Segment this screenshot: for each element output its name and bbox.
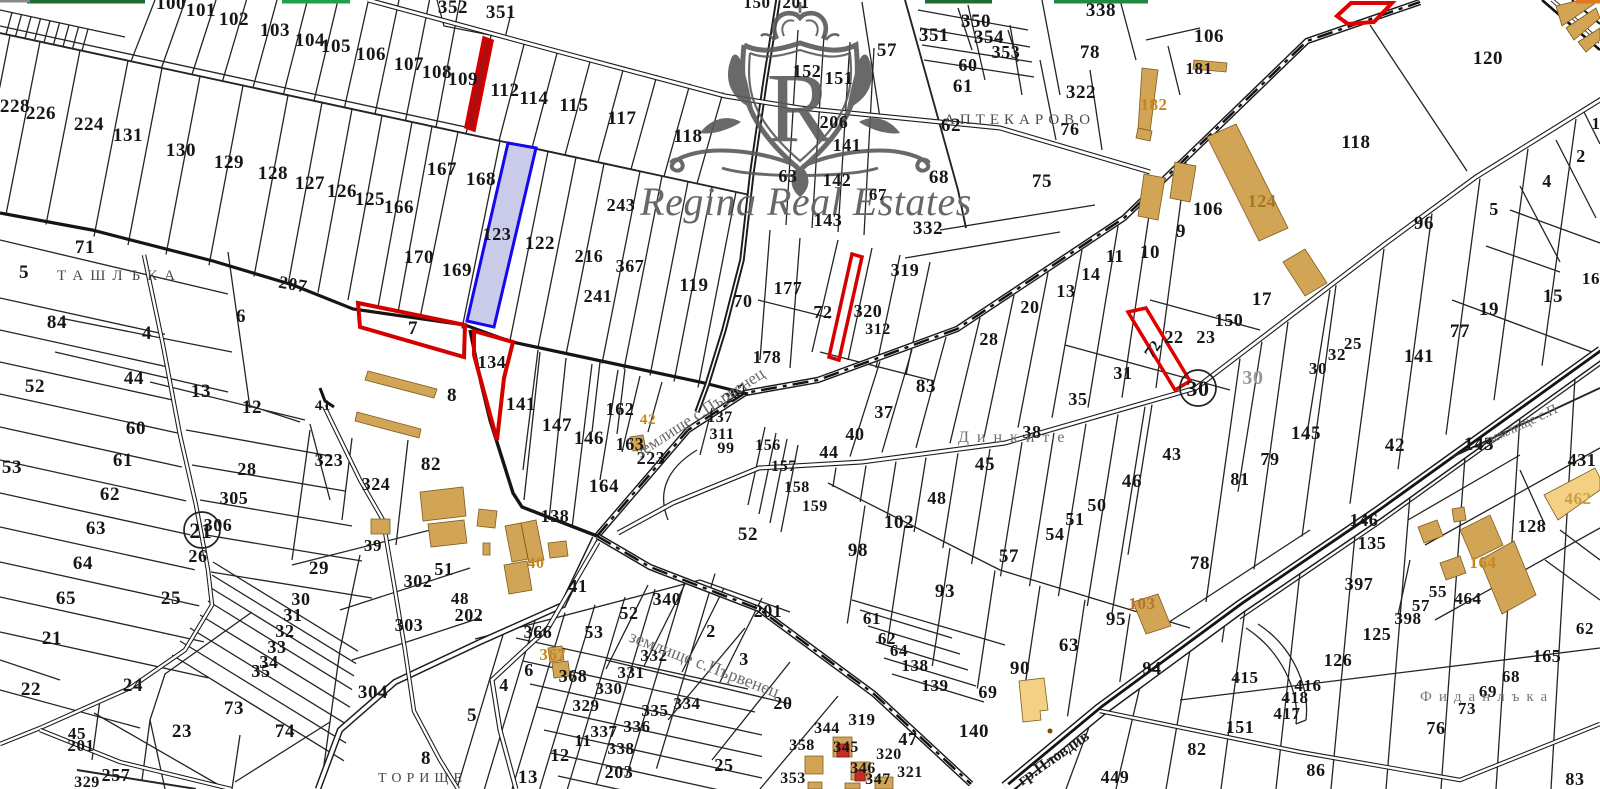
- svg-text:95: 95: [1106, 609, 1126, 630]
- svg-text:417: 417: [1273, 704, 1300, 723]
- svg-text:201: 201: [754, 601, 783, 621]
- svg-text:157: 157: [771, 458, 797, 475]
- svg-text:206: 206: [820, 112, 849, 132]
- svg-text:123: 123: [483, 224, 512, 244]
- svg-text:319: 319: [891, 260, 920, 280]
- svg-text:138: 138: [541, 506, 570, 526]
- svg-text:143: 143: [814, 210, 843, 230]
- svg-text:164: 164: [1469, 553, 1496, 572]
- svg-text:165: 165: [1533, 646, 1562, 666]
- svg-text:2: 2: [706, 621, 716, 641]
- svg-text:53: 53: [584, 622, 603, 642]
- svg-text:340: 340: [653, 589, 682, 609]
- svg-text:338: 338: [1086, 0, 1116, 21]
- svg-text:322: 322: [1066, 82, 1096, 103]
- svg-text:65: 65: [56, 588, 76, 609]
- svg-text:50: 50: [1087, 495, 1106, 515]
- svg-text:112: 112: [490, 80, 519, 101]
- svg-text:141: 141: [1404, 346, 1434, 367]
- svg-text:345: 345: [833, 739, 859, 756]
- svg-text:366: 366: [524, 622, 553, 642]
- svg-text:69: 69: [978, 682, 997, 702]
- svg-text:358: 358: [789, 737, 815, 754]
- svg-text:84: 84: [47, 312, 67, 333]
- svg-text:48: 48: [927, 488, 946, 508]
- svg-text:224: 224: [74, 114, 104, 135]
- svg-text:140: 140: [959, 721, 989, 742]
- svg-text:62: 62: [1576, 619, 1594, 638]
- svg-text:177: 177: [774, 278, 803, 298]
- svg-text:334: 334: [673, 694, 700, 713]
- svg-text:63: 63: [86, 518, 106, 539]
- svg-text:78: 78: [1190, 553, 1210, 574]
- svg-text:94: 94: [1142, 658, 1161, 678]
- svg-text:43: 43: [1162, 444, 1181, 464]
- svg-text:320: 320: [876, 746, 902, 763]
- svg-text:4: 4: [499, 675, 509, 695]
- svg-text:53: 53: [2, 457, 22, 478]
- svg-text:52: 52: [25, 376, 45, 397]
- svg-text:4: 4: [1542, 171, 1552, 191]
- svg-text:29: 29: [309, 558, 329, 579]
- svg-text:12: 12: [242, 397, 262, 418]
- svg-text:131: 131: [113, 125, 143, 146]
- svg-text:332: 332: [913, 218, 943, 239]
- svg-text:216: 216: [575, 246, 604, 266]
- svg-text:329: 329: [74, 774, 100, 789]
- svg-text:60: 60: [958, 55, 977, 75]
- svg-text:367: 367: [539, 645, 566, 664]
- svg-text:1: 1: [1591, 114, 1600, 133]
- svg-text:24: 24: [123, 675, 143, 696]
- svg-text:139: 139: [921, 676, 948, 695]
- svg-text:75: 75: [1032, 171, 1052, 192]
- svg-text:182: 182: [1140, 95, 1167, 114]
- svg-text:202: 202: [455, 605, 484, 625]
- svg-text:64: 64: [73, 553, 93, 574]
- svg-text:61: 61: [113, 450, 133, 471]
- svg-text:118: 118: [1341, 132, 1370, 153]
- svg-text:126: 126: [327, 181, 357, 202]
- svg-text:134: 134: [478, 352, 507, 372]
- svg-text:169: 169: [442, 260, 472, 281]
- svg-text:102: 102: [219, 9, 249, 30]
- svg-text:96: 96: [1414, 213, 1434, 234]
- svg-text:398: 398: [1394, 609, 1421, 628]
- svg-text:146: 146: [1350, 510, 1379, 530]
- svg-text:82: 82: [421, 454, 441, 475]
- svg-text:156: 156: [755, 437, 781, 454]
- svg-text:181: 181: [1185, 59, 1212, 78]
- svg-text:76: 76: [1426, 718, 1445, 738]
- svg-text:166: 166: [384, 197, 414, 218]
- svg-text:127: 127: [295, 173, 325, 194]
- svg-text:25: 25: [714, 755, 733, 775]
- svg-text:51: 51: [1065, 509, 1084, 529]
- svg-text:347: 347: [865, 771, 891, 788]
- svg-text:11: 11: [574, 731, 591, 750]
- svg-text:323: 323: [315, 450, 344, 470]
- svg-text:45: 45: [975, 454, 995, 475]
- svg-text:14: 14: [1081, 264, 1100, 284]
- svg-text:8: 8: [421, 748, 431, 769]
- svg-text:61: 61: [863, 609, 881, 628]
- svg-text:30: 30: [1186, 376, 1209, 401]
- svg-text:81: 81: [1230, 469, 1249, 489]
- svg-text:117: 117: [607, 108, 636, 129]
- svg-text:158: 158: [784, 479, 810, 496]
- svg-text:44: 44: [819, 442, 838, 462]
- svg-text:462: 462: [1564, 489, 1591, 508]
- svg-text:449: 449: [1101, 767, 1130, 787]
- svg-text:415: 415: [1231, 668, 1258, 687]
- svg-text:46: 46: [1122, 471, 1142, 492]
- svg-text:23: 23: [172, 721, 192, 742]
- svg-text:5: 5: [19, 262, 29, 283]
- svg-text:82: 82: [1187, 739, 1206, 759]
- svg-text:107: 107: [394, 54, 424, 75]
- svg-text:168: 168: [466, 169, 496, 190]
- svg-text:125: 125: [1363, 624, 1392, 644]
- svg-text:241: 241: [584, 286, 613, 306]
- svg-text:353: 353: [780, 770, 806, 787]
- svg-text:431: 431: [1568, 450, 1597, 470]
- svg-text:41: 41: [315, 398, 331, 414]
- svg-text:20: 20: [1020, 297, 1039, 317]
- svg-text:28: 28: [979, 329, 998, 349]
- svg-text:128: 128: [1518, 516, 1547, 536]
- svg-text:78: 78: [1080, 42, 1100, 63]
- svg-text:52: 52: [738, 524, 758, 545]
- svg-text:63: 63: [1059, 635, 1079, 656]
- svg-text:141: 141: [833, 135, 862, 155]
- svg-text:15: 15: [1543, 286, 1563, 307]
- svg-text:99: 99: [717, 440, 734, 457]
- svg-text:304: 304: [358, 682, 388, 703]
- svg-text:61: 61: [953, 76, 973, 97]
- svg-text:77: 77: [1450, 321, 1470, 342]
- svg-text:42: 42: [1385, 435, 1405, 456]
- svg-text:201: 201: [67, 736, 94, 755]
- svg-text:52: 52: [619, 603, 638, 623]
- svg-text:79: 79: [1260, 449, 1279, 469]
- svg-text:320: 320: [854, 301, 883, 321]
- svg-text:145: 145: [1291, 423, 1321, 444]
- svg-text:72: 72: [813, 302, 832, 322]
- svg-text:352: 352: [438, 0, 468, 18]
- svg-text:22: 22: [1164, 327, 1183, 347]
- svg-text:120: 120: [1473, 48, 1503, 69]
- svg-text:368: 368: [559, 666, 588, 686]
- svg-text:138: 138: [901, 656, 928, 675]
- svg-text:324: 324: [362, 474, 391, 494]
- svg-text:60: 60: [126, 418, 146, 439]
- svg-text:150: 150: [743, 0, 770, 12]
- svg-text:31: 31: [1113, 363, 1132, 383]
- svg-text:ТАШЛЪКА: ТАШЛЪКА: [57, 268, 182, 284]
- svg-text:10: 10: [1140, 242, 1160, 263]
- svg-text:35: 35: [251, 661, 270, 681]
- svg-text:151: 151: [825, 68, 854, 88]
- svg-text:303: 303: [395, 615, 424, 635]
- svg-text:243: 243: [607, 195, 636, 215]
- svg-text:130: 130: [166, 140, 196, 161]
- svg-text:146: 146: [574, 428, 604, 449]
- svg-text:13: 13: [518, 767, 538, 788]
- svg-text:70: 70: [733, 291, 752, 311]
- svg-text:25: 25: [1344, 334, 1362, 353]
- svg-text:103: 103: [260, 20, 290, 41]
- svg-text:Динките: Динките: [958, 429, 1072, 446]
- svg-text:114: 114: [519, 88, 548, 109]
- svg-text:9: 9: [1176, 221, 1186, 242]
- svg-text:150: 150: [1215, 310, 1244, 330]
- svg-text:6: 6: [236, 306, 246, 327]
- svg-text:67: 67: [869, 185, 887, 204]
- svg-text:119: 119: [679, 275, 708, 296]
- svg-text:106: 106: [1193, 199, 1223, 220]
- svg-text:152: 152: [793, 61, 822, 81]
- svg-text:226: 226: [26, 103, 56, 124]
- svg-text:105: 105: [321, 36, 351, 57]
- svg-text:257: 257: [102, 765, 131, 785]
- svg-text:170: 170: [404, 247, 434, 268]
- svg-text:203: 203: [605, 762, 634, 782]
- svg-text:30: 30: [1309, 359, 1327, 378]
- svg-text:147: 147: [542, 415, 572, 436]
- svg-text:162: 162: [606, 399, 635, 419]
- svg-text:2: 2: [1576, 146, 1586, 166]
- svg-text:40: 40: [845, 424, 864, 444]
- svg-text:397: 397: [1345, 574, 1374, 594]
- svg-text:135: 135: [1358, 533, 1387, 553]
- svg-text:12: 12: [550, 745, 569, 765]
- svg-text:6: 6: [524, 660, 534, 680]
- svg-text:17: 17: [1252, 289, 1272, 310]
- svg-text:21: 21: [42, 628, 62, 649]
- svg-text:54: 54: [1045, 524, 1064, 544]
- svg-text:351: 351: [486, 2, 516, 23]
- svg-text:35: 35: [1068, 389, 1087, 409]
- svg-text:41: 41: [568, 576, 587, 596]
- svg-text:48: 48: [451, 589, 469, 608]
- svg-text:3: 3: [739, 649, 749, 669]
- svg-text:68: 68: [1502, 667, 1520, 686]
- svg-text:90: 90: [1010, 658, 1030, 679]
- svg-text:125: 125: [355, 189, 385, 210]
- svg-text:30: 30: [1242, 367, 1263, 389]
- svg-text:128: 128: [258, 163, 288, 184]
- svg-text:201: 201: [782, 0, 809, 12]
- svg-text:40: 40: [527, 555, 544, 572]
- svg-text:13: 13: [191, 381, 211, 402]
- svg-text:319: 319: [848, 710, 875, 729]
- svg-text:23: 23: [1196, 327, 1215, 347]
- svg-text:351: 351: [919, 25, 949, 46]
- svg-text:98: 98: [848, 540, 868, 561]
- svg-text:336: 336: [623, 717, 650, 736]
- svg-text:26: 26: [188, 546, 207, 566]
- svg-text:19: 19: [1479, 299, 1499, 320]
- svg-text:102: 102: [884, 512, 914, 533]
- svg-text:367: 367: [616, 256, 645, 276]
- svg-text:93: 93: [935, 581, 955, 602]
- svg-text:106: 106: [356, 44, 386, 65]
- svg-text:109: 109: [448, 69, 478, 90]
- svg-text:151: 151: [1226, 717, 1255, 737]
- svg-text:101: 101: [186, 0, 216, 21]
- svg-text:302: 302: [404, 571, 433, 591]
- svg-text:21: 21: [189, 518, 212, 543]
- svg-text:37: 37: [874, 402, 893, 422]
- svg-text:16: 16: [1582, 269, 1600, 288]
- svg-text:5: 5: [1489, 199, 1499, 219]
- svg-text:142: 142: [823, 170, 852, 190]
- svg-text:44: 44: [124, 368, 144, 389]
- svg-text:83: 83: [916, 376, 936, 397]
- svg-text:141: 141: [506, 394, 536, 415]
- svg-text:8: 8: [447, 385, 457, 406]
- svg-text:344: 344: [814, 720, 840, 737]
- svg-text:129: 129: [214, 152, 244, 173]
- svg-text:159: 159: [802, 498, 828, 515]
- svg-text:126: 126: [1324, 650, 1353, 670]
- svg-text:228: 228: [0, 96, 30, 117]
- svg-text:63: 63: [778, 166, 797, 186]
- svg-text:АПТЕКАРОВО: АПТЕКАРОВО: [944, 112, 1095, 128]
- svg-text:5: 5: [467, 705, 477, 726]
- svg-text:25: 25: [161, 588, 181, 609]
- svg-text:28: 28: [237, 459, 256, 479]
- svg-text:73: 73: [224, 698, 244, 719]
- svg-text:115: 115: [559, 95, 588, 116]
- svg-text:106: 106: [1194, 26, 1224, 47]
- svg-text:42: 42: [640, 412, 656, 428]
- svg-text:57: 57: [877, 40, 897, 61]
- svg-text:83: 83: [1565, 769, 1584, 789]
- svg-text:100: 100: [156, 0, 186, 14]
- svg-text:74: 74: [275, 721, 295, 742]
- svg-text:103: 103: [1128, 594, 1155, 613]
- svg-text:7: 7: [408, 318, 418, 339]
- svg-text:11: 11: [1106, 246, 1124, 266]
- svg-text:321: 321: [897, 764, 923, 781]
- svg-text:122: 122: [525, 233, 555, 254]
- svg-text:13: 13: [1056, 281, 1075, 301]
- svg-text:62: 62: [100, 484, 120, 505]
- svg-text:86: 86: [1306, 760, 1325, 780]
- svg-text:55: 55: [1429, 582, 1447, 601]
- svg-text:57: 57: [999, 546, 1019, 567]
- svg-text:22: 22: [21, 679, 41, 700]
- svg-text:329: 329: [572, 696, 599, 715]
- svg-text:464: 464: [1454, 589, 1481, 608]
- svg-text:39: 39: [364, 536, 382, 555]
- svg-text:68: 68: [929, 167, 949, 188]
- svg-text:167: 167: [427, 159, 457, 180]
- svg-text:ТОРИЩЕ: ТОРИЩЕ: [378, 771, 467, 786]
- svg-text:353: 353: [992, 42, 1021, 62]
- svg-text:305: 305: [220, 488, 249, 508]
- svg-text:Фиданлъка: Фиданлъка: [1420, 689, 1554, 705]
- svg-text:118: 118: [673, 126, 702, 147]
- svg-text:338: 338: [607, 739, 634, 758]
- svg-text:51: 51: [434, 559, 453, 579]
- svg-text:124: 124: [1248, 191, 1277, 211]
- svg-text:331: 331: [617, 663, 644, 682]
- svg-text:312: 312: [865, 321, 891, 338]
- svg-text:164: 164: [589, 476, 619, 497]
- svg-text:71: 71: [75, 237, 95, 258]
- svg-text:4: 4: [142, 323, 152, 344]
